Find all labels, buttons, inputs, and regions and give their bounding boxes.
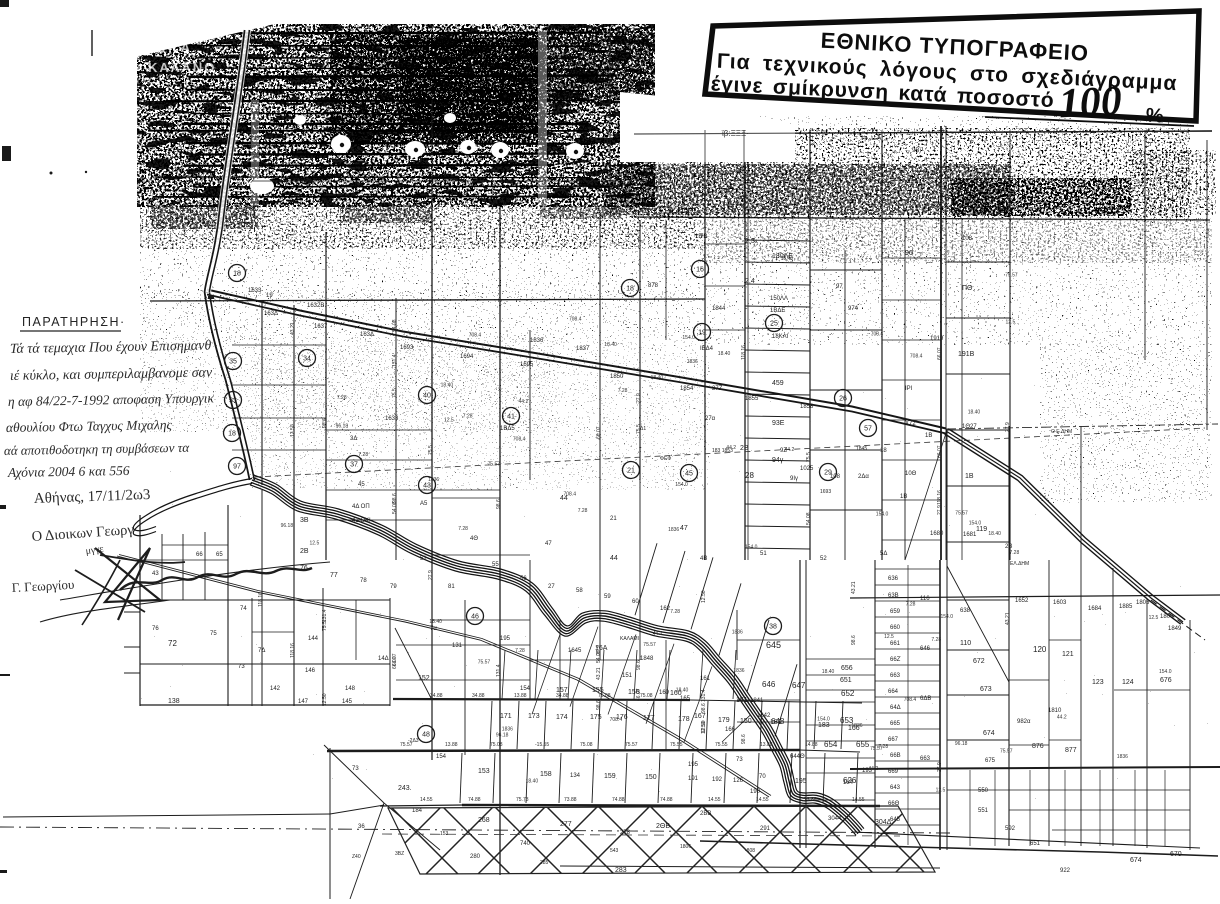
- svg-text:100: 100: [1058, 78, 1123, 127]
- svg-text:285: 285: [540, 860, 549, 866]
- svg-text:674: 674: [1130, 857, 1142, 864]
- svg-text:283: 283: [615, 867, 627, 874]
- svg-text:Αχόνια 2004 6 και 556: Αχόνια 2004 6 και 556: [7, 463, 130, 480]
- svg-text:670: 670: [1170, 851, 1182, 858]
- svg-text:ϊβ:ΞΞΞ·: ϊβ:ΞΞΞ·: [721, 129, 749, 138]
- svg-text:ΛΙΚΑ: ΛΙΚΑ: [150, 40, 193, 55]
- svg-text:280: 280: [470, 854, 481, 860]
- svg-text:3ΒΖ: 3ΒΖ: [395, 851, 404, 857]
- svg-text:.ηι..ι.:Ά!..: .ηι..ι.:Ά!..: [860, 135, 887, 142]
- svg-text:ΠΑΡΑΤΗΡΗΣΗ·: ΠΑΡΑΤΗΡΗΣΗ·: [22, 315, 126, 329]
- svg-text:%: %: [1145, 105, 1164, 128]
- svg-text:Ζ40: Ζ40: [352, 854, 361, 860]
- svg-text:ΚΑΛΑΝΟ: ΚΑΛΑΝΟ: [148, 60, 216, 75]
- svg-text:922: 922: [1060, 868, 1071, 874]
